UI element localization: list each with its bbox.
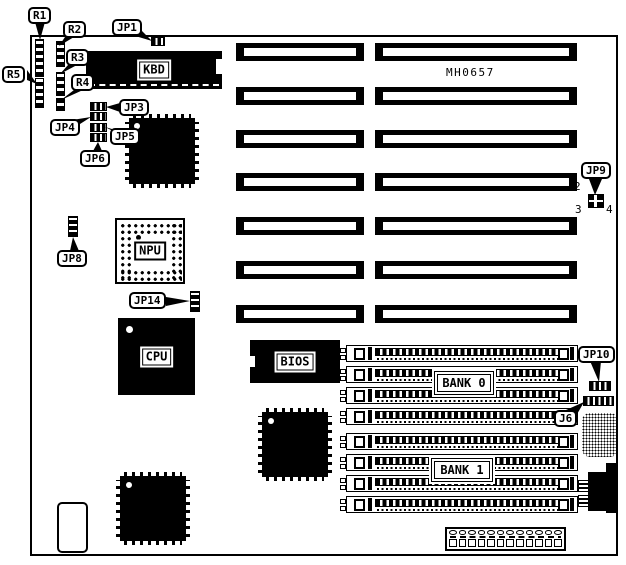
callout-jp5: JP5	[110, 128, 140, 145]
callout-tail-r5	[27, 70, 37, 84]
callout-jp3: JP3	[119, 99, 149, 116]
callout-tail-jp14	[166, 297, 190, 306]
callout-jp14: JP14	[129, 292, 166, 309]
callout-tail-r3	[60, 65, 77, 74]
callout-tail-jp3	[106, 103, 120, 112]
jp9-pin4-label: 4	[606, 204, 613, 215]
callout-r2: R2	[63, 21, 86, 38]
jp9-pin2-label: 2	[574, 181, 581, 192]
callout-j6: J6	[554, 410, 577, 427]
callout-tail-jp10	[590, 361, 601, 382]
callout-tail-jp8	[70, 237, 79, 251]
callout-tail-jp9	[589, 179, 602, 195]
callout-r3: R3	[66, 49, 89, 66]
callout-jp10: JP10	[578, 346, 615, 363]
callout-tail-r1	[35, 22, 45, 40]
callout-jp9: JP9	[581, 162, 611, 179]
callout-jp6: JP6	[80, 150, 110, 167]
callout-jp1: JP1	[112, 19, 142, 36]
callout-tail-r4	[61, 90, 83, 100]
callout-r4: R4	[71, 74, 94, 91]
motherboard-diagram: MH0657 KBD NPU CPU BIOS	[0, 0, 626, 565]
callout-r5: R5	[2, 66, 25, 83]
callout-jp4: JP4	[50, 119, 80, 136]
callout-tail-r2	[59, 37, 74, 46]
jp9-pin3-label: 3	[575, 204, 582, 215]
callout-r1: R1	[28, 7, 51, 24]
callout-jp8: JP8	[57, 250, 87, 267]
